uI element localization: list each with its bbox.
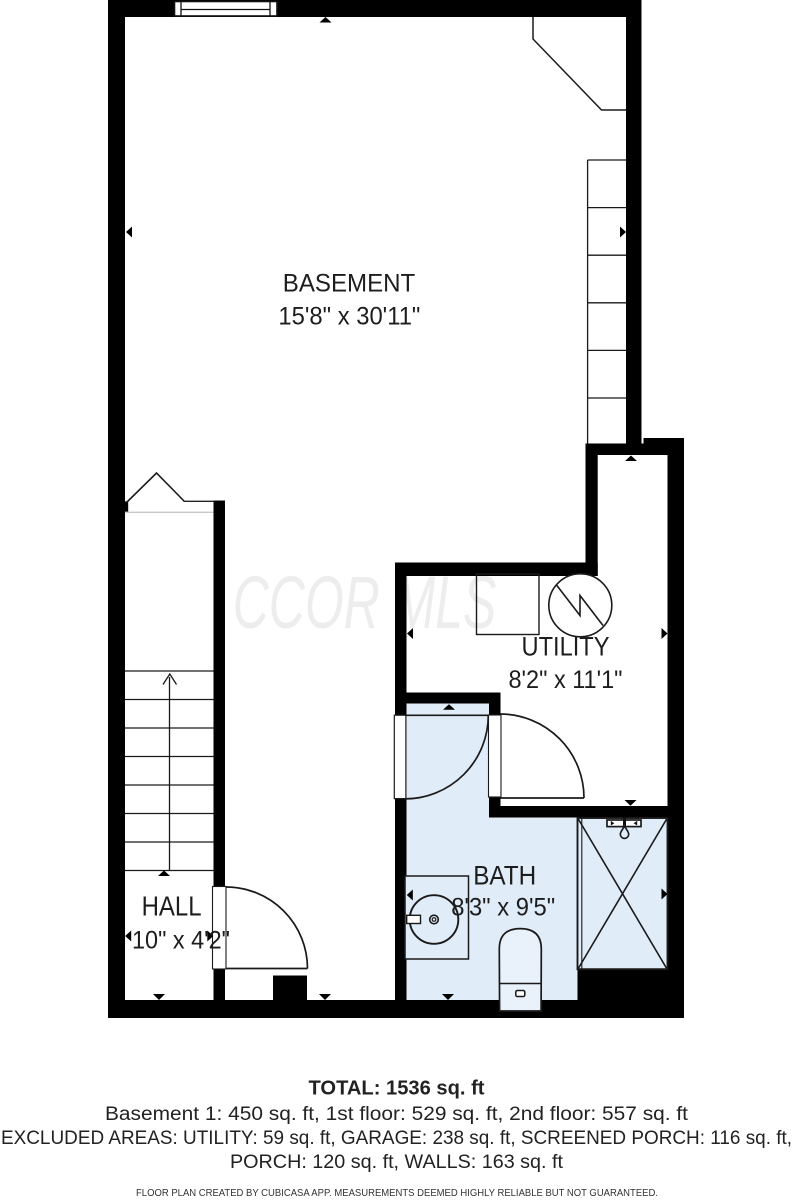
svg-text:HALL: HALL [142,891,202,922]
svg-text:Basement 1: 450 sq. ft, 1st fl: Basement 1: 450 sq. ft, 1st floor: 529 s… [105,1104,689,1125]
svg-text:UTILITY: UTILITY [522,632,610,662]
svg-text:10" x 4'2": 10" x 4'2" [132,927,230,955]
svg-text:PORCH: 120 sq. ft, WALLS: 163: PORCH: 120 sq. ft, WALLS: 163 sq. ft [230,1152,564,1173]
svg-text:FLOOR PLAN CREATED BY CUBICASA: FLOOR PLAN CREATED BY CUBICASA APP. MEAS… [136,1188,658,1199]
svg-text:EXCLUDED AREAS: UTILITY: 59 sq: EXCLUDED AREAS: UTILITY: 59 sq. ft, GARA… [1,1128,792,1149]
svg-text:15'8" x 30'11": 15'8" x 30'11" [278,302,420,330]
svg-text:BASEMENT: BASEMENT [283,270,416,298]
svg-text:TOTAL: 1536 sq. ft: TOTAL: 1536 sq. ft [309,1078,485,1100]
svg-text:8'3" x 9'5": 8'3" x 9'5" [451,894,555,922]
svg-text:8'2" x 11'1": 8'2" x 11'1" [509,666,623,694]
svg-text:BATH: BATH [473,861,536,891]
